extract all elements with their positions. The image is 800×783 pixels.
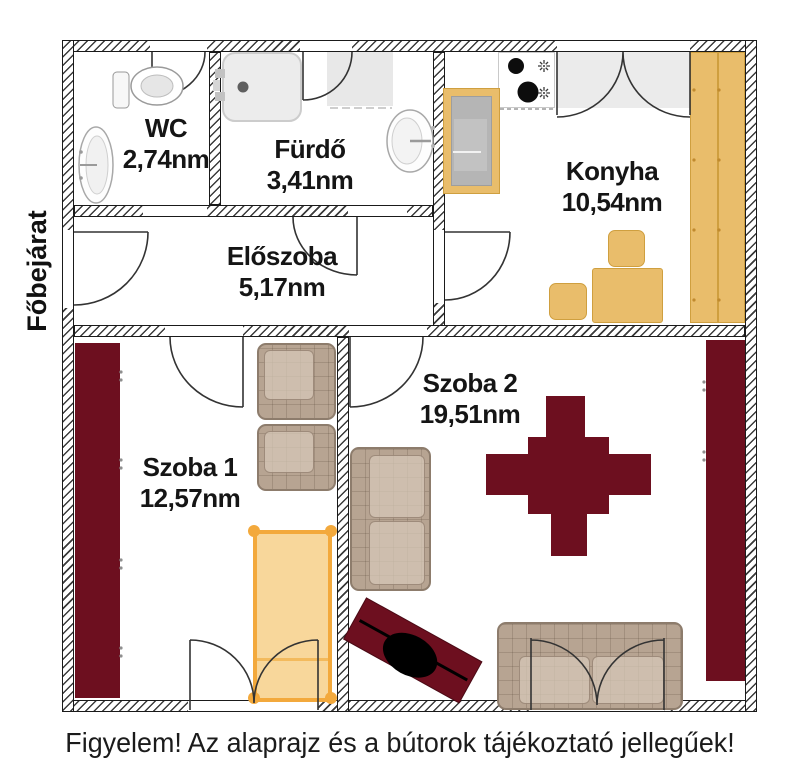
disclaimer-caption: Figyelem! Az alaprajz és a bútorok tájék… (16, 727, 784, 759)
bed (253, 530, 332, 702)
furdo-window (327, 52, 393, 106)
sofa-left-cushion (369, 521, 425, 585)
desk-with-chair (343, 598, 482, 705)
konyha-door-opening (433, 230, 445, 303)
wall-left (62, 40, 74, 712)
szoba1-door-arc (170, 337, 243, 407)
main-entrance-door-arc (74, 232, 148, 305)
dining-chair-top (546, 396, 585, 437)
room-name: Előszoba (192, 241, 372, 272)
bed-corner-dot (325, 525, 337, 537)
furdo-door-opening (348, 205, 407, 217)
szoba2-door-opening (349, 325, 427, 337)
main-entrance-opening (62, 230, 74, 308)
room-label-szoba2: Szoba 2 19,51nm (390, 368, 550, 429)
wc-door-opening (143, 205, 207, 217)
bed-corner-dot (248, 692, 260, 704)
room-label-furdo: Fürdő 3,41nm (230, 134, 390, 195)
main-entrance-label: Főbejárat (22, 196, 54, 346)
fridge (443, 88, 500, 194)
wall-right (745, 40, 757, 712)
bed-corner-dot (325, 692, 337, 704)
room-name: Szoba 1 (110, 452, 270, 483)
stove-counter (498, 52, 555, 108)
sofa-left-cushion (369, 455, 425, 518)
room-label-wc: WC 2,74nm (96, 113, 236, 174)
sofa-bottom (497, 622, 683, 710)
kitchen-table (592, 268, 663, 323)
armchair-1-cushion (264, 350, 314, 400)
wc-window-opening (150, 40, 207, 52)
kitchen-chair-left (549, 283, 587, 320)
room-area: 12,57nm (110, 483, 270, 514)
dining-table (528, 437, 609, 514)
sofa-bottom-cushion (519, 656, 590, 704)
room-label-konyha: Konyha 10,54nm (522, 156, 702, 217)
room-area: 3,41nm (230, 165, 390, 196)
room-area: 5,17nm (192, 272, 372, 303)
wall-szoba1-szoba2 (337, 337, 349, 712)
dining-chair-bottom (551, 514, 587, 556)
room-area: 19,51nm (390, 399, 550, 430)
konyha-window (557, 52, 690, 108)
furdo-washbasin (387, 110, 435, 172)
armchair-2-cushion (264, 431, 314, 473)
szoba1-door-opening (165, 325, 243, 337)
room-area: 10,54nm (522, 187, 702, 218)
fridge-handle (453, 151, 481, 153)
wc-window-arc (152, 52, 205, 98)
konyha-door-arc (445, 232, 510, 300)
floorplan-canvas: Főbejárat (0, 0, 800, 783)
armchair-1 (257, 343, 336, 420)
wardrobe-szoba2 (706, 340, 745, 681)
room-name: Fürdő (230, 134, 390, 165)
room-name: WC (96, 113, 236, 144)
room-name: Konyha (522, 156, 702, 187)
cabinet-divider (717, 53, 719, 322)
toilet (113, 67, 183, 108)
bed-corner-dot (248, 525, 260, 537)
wardrobe-szoba1 (75, 343, 120, 698)
sofa-left (350, 447, 431, 591)
room-label-szoba1: Szoba 1 12,57nm (110, 452, 270, 513)
room-area: 2,74nm (96, 144, 236, 175)
fridge-panel (454, 119, 487, 171)
dining-chair-right (609, 454, 651, 495)
room-name: Szoba 2 (390, 368, 550, 399)
kitchen-chair-top (608, 230, 645, 267)
shower-tray (222, 52, 302, 122)
dining-chair-left (486, 454, 528, 495)
room-label-eloszoba: Előszoba 5,17nm (192, 241, 372, 302)
bed-footline (257, 658, 328, 661)
konyha-balcony-opening (557, 40, 690, 52)
sofa-bottom-cushion (592, 656, 664, 704)
furdo-window-opening (300, 40, 352, 52)
